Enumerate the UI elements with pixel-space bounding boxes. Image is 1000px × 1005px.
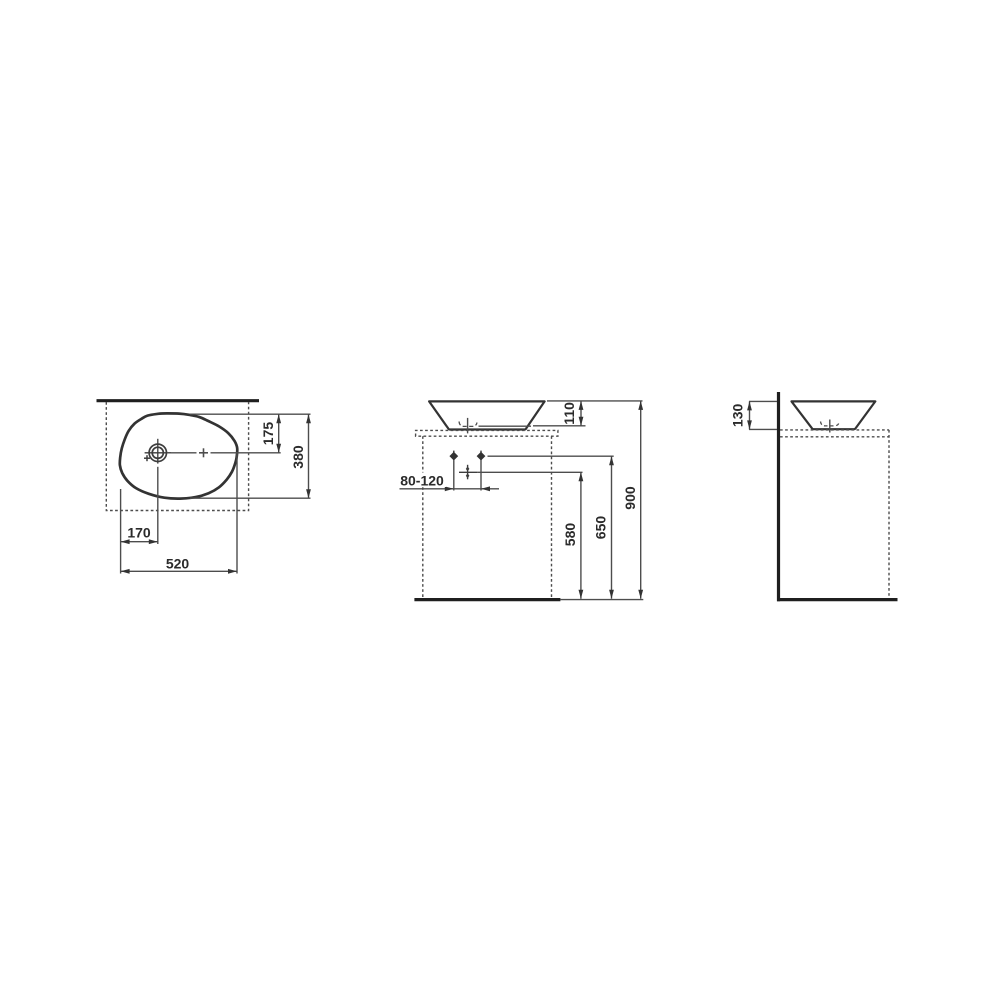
svg-text:130: 130 <box>730 404 746 428</box>
svg-text:80-120: 80-120 <box>400 472 444 488</box>
svg-text:580: 580 <box>562 523 578 547</box>
svg-text:520: 520 <box>166 556 190 572</box>
svg-text:650: 650 <box>593 516 609 540</box>
svg-text:380: 380 <box>290 445 306 469</box>
svg-text:110: 110 <box>561 402 577 425</box>
svg-text:900: 900 <box>622 486 638 510</box>
svg-text:175: 175 <box>260 422 276 446</box>
svg-text:170: 170 <box>127 525 151 541</box>
